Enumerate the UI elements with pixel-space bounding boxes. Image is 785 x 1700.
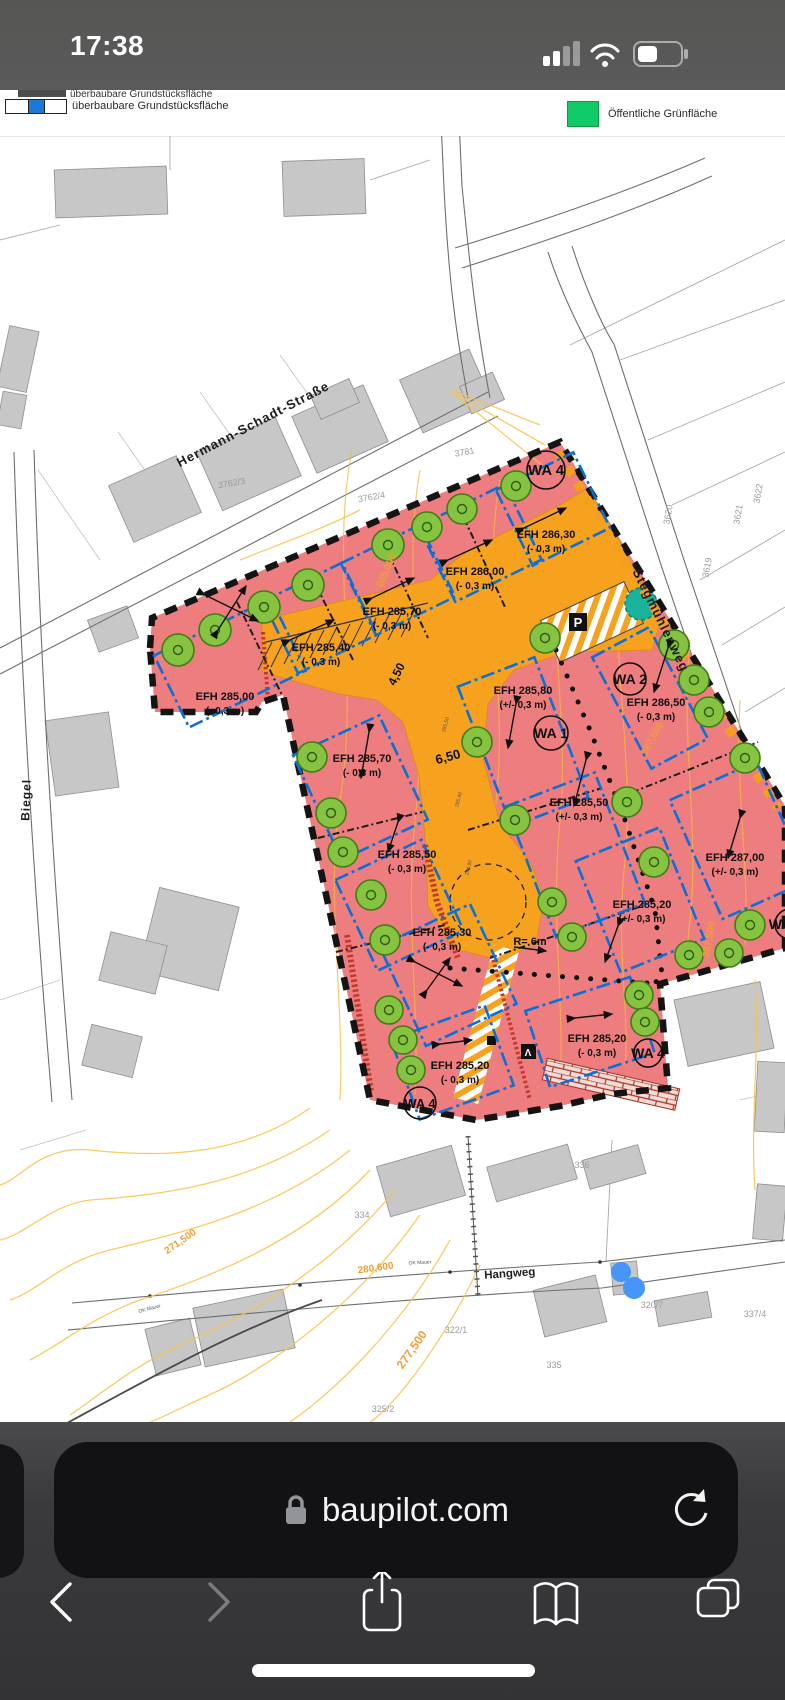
buildable-area-swatch-blue [28,99,45,114]
svg-text:(- 0,3 m): (- 0,3 m) [206,706,244,717]
legend-label-public-green: Öffentliche Grünfläche [608,108,717,120]
svg-text:336: 336 [574,1160,589,1170]
share-button[interactable] [364,1572,400,1630]
svg-text:3781: 3781 [454,445,475,458]
zone-label-wa4-bottom-right: WA 4 [631,1045,665,1061]
fence-line [468,1136,478,1296]
svg-text:335: 335 [546,1360,561,1370]
legend-label-buildable: überbaubare Grundstücksfläche [72,100,229,112]
svg-text:EFH 286,30: EFH 286,30 [517,529,576,541]
lock-icon [283,1493,309,1527]
svg-text:P: P [574,615,583,630]
svg-text:EFH 285,20: EFH 285,20 [568,1033,627,1045]
svg-text:EFH 285,20: EFH 285,20 [613,899,672,911]
status-bar: 17:38 [0,0,785,90]
svg-text:3621: 3621 [731,504,744,525]
back-button[interactable] [52,1584,70,1620]
svg-text:EFH 286,00: EFH 286,00 [446,566,505,578]
svg-text:(+/- 0,3 m): (+/- 0,3 m) [619,914,666,925]
svg-text:(- 0,3 m): (- 0,3 m) [423,942,461,953]
svg-text:(- 0,3 m): (- 0,3 m) [441,1075,479,1086]
svg-text:EFH 285,40: EFH 285,40 [292,642,351,654]
safari-bottom-chrome: baupilot.com [0,1422,785,1700]
iphone-screen: 17:38 überbaubare Grundstücksfläche [0,0,785,1700]
svg-text:(+/- 0,3 m): (+/- 0,3 m) [500,700,547,711]
svg-text:EFH 287,00: EFH 287,00 [706,852,765,864]
svg-text:3620: 3620 [661,504,674,525]
bookmarks-button[interactable] [535,1583,577,1624]
zone-label-wa1: WA 1 [534,725,568,741]
wifi-icon [592,45,618,67]
svg-text:334: 334 [354,1210,369,1220]
svg-text:Ʌ: Ʌ [525,1048,532,1059]
wall-label: OK Mauer [138,1303,162,1315]
turning-radius-label: R= 6m [513,936,547,948]
svg-text:(- 0,3 m): (- 0,3 m) [343,768,381,779]
cellular-signal-icon [543,41,580,66]
public-green-swatch [567,101,599,127]
street-label-hangweg: Hangweg [484,1266,536,1282]
svg-text:EFH 285,50: EFH 285,50 [378,849,437,861]
svg-text:EFH 285,30: EFH 285,30 [413,927,472,939]
battery-icon [634,42,688,66]
svg-text:(+/- 0,3 m): (+/- 0,3 m) [712,867,759,878]
svg-text:EFH 286,50: EFH 286,50 [627,697,686,709]
forward-button[interactable] [210,1584,228,1620]
tabs-button[interactable] [698,1580,738,1616]
zone-label-wa-partial: WA [769,916,785,932]
zone-label-wa4-top: WA 4 [528,462,565,479]
svg-text:3619: 3619 [700,557,713,578]
zone-label-wa4-bottom-left: WA 4 [404,1096,436,1111]
svg-text:337/4: 337/4 [744,1309,767,1319]
svg-text:(+/- 0,3 m): (+/- 0,3 m) [556,812,603,823]
clock: 17:38 [70,30,144,62]
svg-text:(- 0,3 m): (- 0,3 m) [527,544,565,555]
svg-text:(- 0,3 m): (- 0,3 m) [302,657,340,668]
street-label-biegel: Biegel [18,779,33,821]
svg-text:(- 0,3 m): (- 0,3 m) [373,621,411,632]
svg-text:(- 0,3 m): (- 0,3 m) [388,864,426,875]
svg-text:(- 0,3 m): (- 0,3 m) [578,1048,616,1059]
address-bar[interactable]: baupilot.com [54,1442,738,1578]
svg-text:325/2: 325/2 [372,1404,395,1414]
svg-text:EFH 285,80: EFH 285,80 [494,685,553,697]
svg-text:EFH 285,00: EFH 285,00 [196,691,255,703]
plan-legend: überbaubare Grundstücksfläche überbaubar… [0,90,785,137]
svg-text:320/7: 320/7 [641,1300,664,1310]
contour-277500: 277,500 [394,1328,431,1372]
previous-tab-peek[interactable] [0,1444,24,1578]
legend-clipped-row: überbaubare Grundstücksfläche [70,90,330,97]
zone-label-wa2: WA 2 [613,671,647,687]
svg-text:(- 0,3 m): (- 0,3 m) [456,581,494,592]
svg-text:3762/4: 3762/4 [357,490,386,505]
wall-label: OK Mauer [408,1259,431,1266]
svg-text:EFH 285,70: EFH 285,70 [363,606,422,618]
contour-280600: 280,600 [357,1261,395,1277]
parking-sign: P [569,613,587,631]
svg-text:EFH 285,50: EFH 285,50 [550,797,609,809]
reload-button[interactable] [670,1486,714,1536]
home-indicator[interactable] [252,1664,535,1677]
svg-text:EFH 285,70: EFH 285,70 [333,753,392,765]
legend-clipped-swatch [18,90,66,97]
svg-text:3622: 3622 [751,483,764,504]
svg-text:322/1: 322/1 [445,1325,468,1335]
zoning-plan-map[interactable]: P Ʌ [0,136,785,1422]
svg-text:EFH 285,20: EFH 285,20 [431,1060,490,1072]
url-text: baupilot.com [322,1491,509,1529]
